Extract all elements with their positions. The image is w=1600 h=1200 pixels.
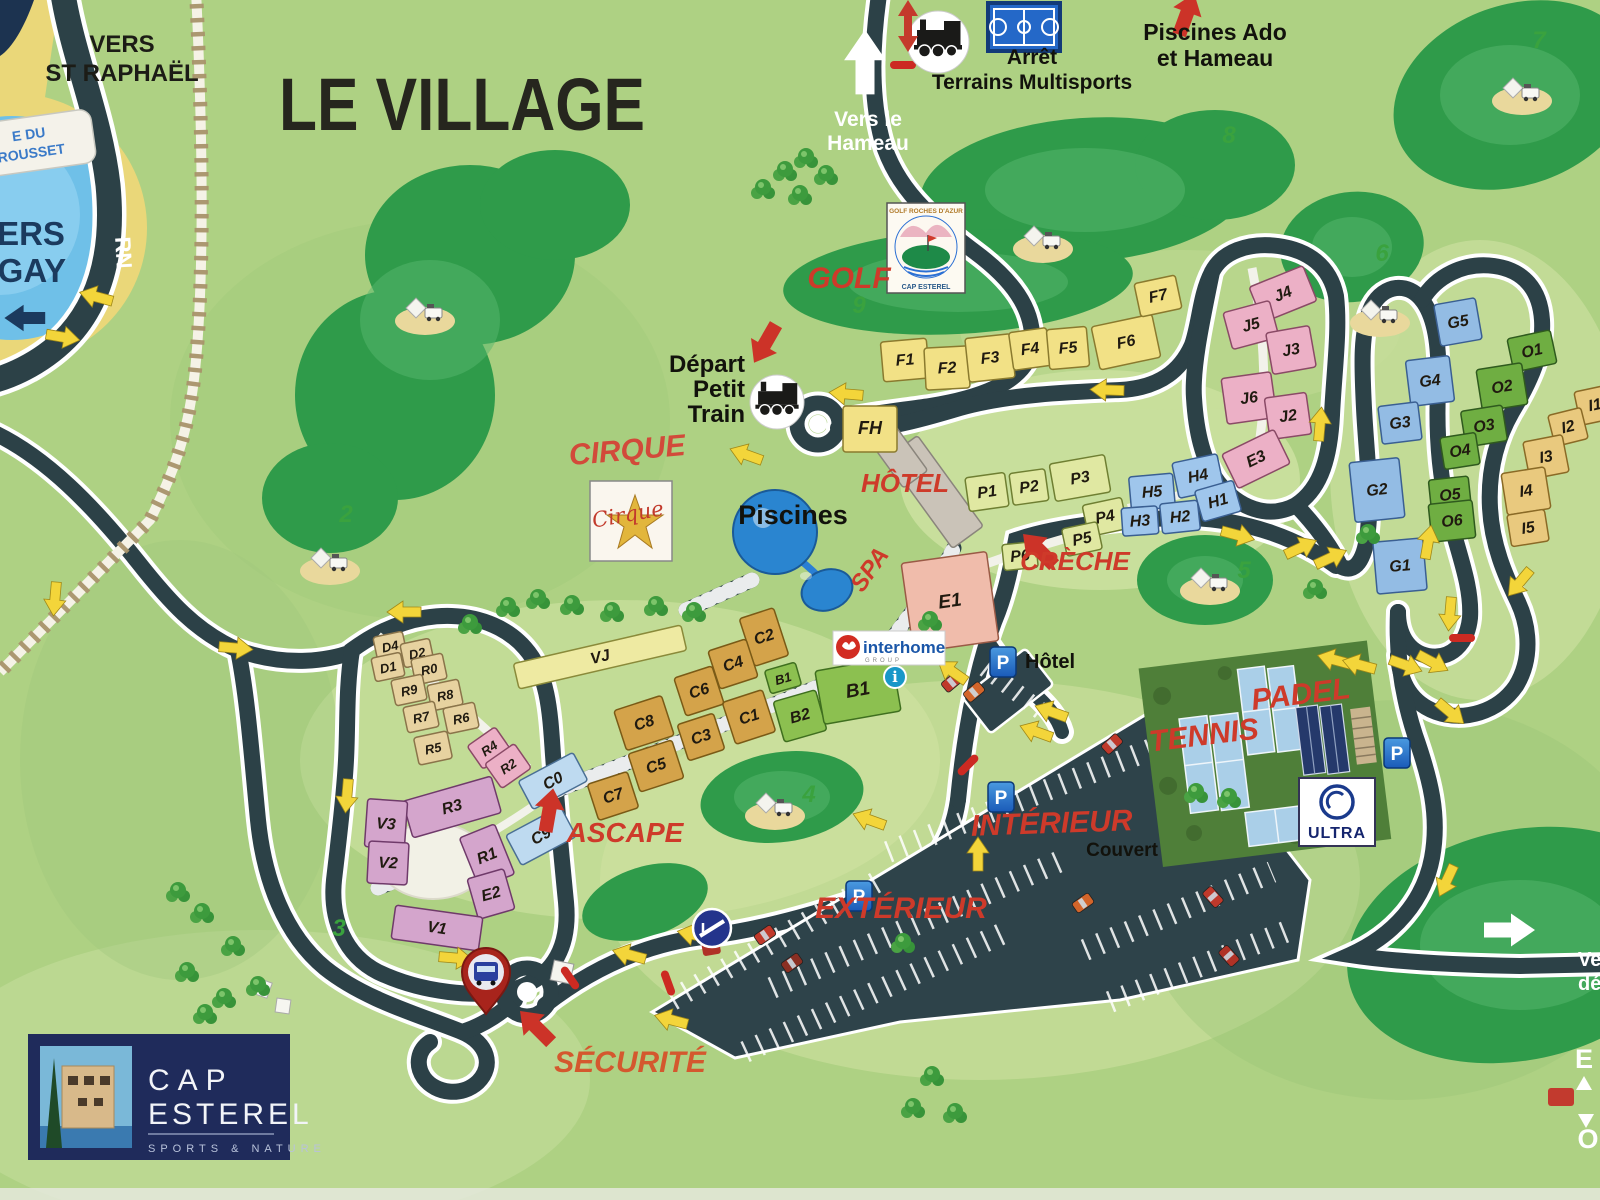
building-label: V2 (378, 854, 399, 872)
info-icon: i (884, 666, 906, 688)
building-label: H5 (1141, 483, 1164, 502)
building-label: F3 (980, 349, 1000, 368)
building-label: P1 (976, 483, 998, 503)
building-label: B1 (844, 678, 872, 703)
exterieur-label: EXTÉRIEUR (815, 891, 987, 925)
golf-logo-text-top: GOLF ROCHES D'AZUR (889, 208, 963, 215)
cap-logo-line2: ESTEREL (148, 1098, 313, 1131)
building-F2: F2 (924, 346, 970, 390)
svg-text:P: P (995, 788, 1008, 809)
rn-label: RN (110, 236, 137, 269)
hole-number-7: 7 (1532, 27, 1547, 54)
hotel-label-red: HÔTEL (861, 468, 949, 498)
building-P1: P1 (965, 472, 1009, 511)
building-label: E1 (937, 589, 963, 613)
interhome-sub: GROUP (865, 658, 902, 664)
building-label: V3 (376, 815, 397, 833)
hole-number-9: 9 (852, 292, 866, 319)
building-R9: R9 (391, 674, 428, 706)
building-J3: J3 (1266, 325, 1317, 374)
building-F4: F4 (1009, 328, 1052, 371)
building-label: O4 (1448, 441, 1472, 461)
legend-partial-o: O (1577, 1124, 1598, 1154)
exit-partial-2: dé (1578, 973, 1600, 995)
building-label: F2 (937, 360, 957, 378)
vers-le-hameau: Vers leHameau (827, 108, 909, 155)
svg-text:P: P (1391, 744, 1404, 765)
couvert-label: Couvert (1086, 840, 1158, 861)
building-I5: I5 (1507, 509, 1550, 547)
creche-label: CRÈCHE (1020, 546, 1130, 576)
building-label: J6 (1239, 389, 1259, 408)
golf-logo: GOLF ROCHES D'AZUR CAP ESTEREL (887, 203, 965, 293)
cirque-logo: Cirque (590, 481, 672, 561)
building-label: J2 (1278, 407, 1298, 426)
hole-number-8: 8 (1222, 122, 1236, 149)
exit-partial-1: Ve (1578, 949, 1600, 971)
piscines-ado: Piscines Adoet Hameau (1143, 19, 1287, 71)
building-P2: P2 (1009, 469, 1049, 506)
multisport-court-icon (988, 3, 1060, 51)
interhome-brand: interhome (863, 638, 945, 657)
building-R5: R5 (413, 731, 452, 765)
hole-number-2: 2 (338, 501, 353, 528)
ultra-label: ULTRA (1308, 825, 1366, 842)
roundabout-train (809, 415, 827, 433)
no-entry-dash-icon (1449, 634, 1475, 642)
building-H3: H3 (1121, 506, 1159, 536)
interieur-label: INTÉRIEUR (970, 803, 1133, 843)
building-F5: F5 (1046, 326, 1089, 369)
building-label: I1 (1587, 396, 1600, 415)
hole-number-5: 5 (1237, 557, 1251, 584)
cap-logo-line1: CAP (148, 1064, 234, 1097)
building-label: I4 (1518, 482, 1534, 501)
roundabout-south (517, 982, 537, 1002)
building-F1: F1 (880, 338, 929, 382)
building-label: G1 (1389, 557, 1412, 576)
building-G3: G3 (1378, 402, 1422, 445)
building-label: F5 (1058, 339, 1079, 358)
building-label: F1 (895, 351, 915, 370)
hole-number-3: 3 (332, 915, 346, 942)
building-H2: H2 (1160, 500, 1201, 534)
building-label: P3 (1069, 468, 1091, 488)
building-label: G2 (1366, 481, 1389, 500)
building-R7: R7 (403, 701, 440, 733)
building-G2: G2 (1349, 458, 1405, 523)
no-entry-dash-icon (890, 61, 916, 69)
building-label: J3 (1281, 341, 1302, 361)
svg-text:i: i (892, 668, 898, 686)
building-label: P2 (1018, 478, 1040, 498)
building-O2: O2 (1476, 363, 1528, 412)
map-canvas: F1F2F3F4F5F6F7FHVJP1P2P3P4P5P6J4J5J3J6J2… (0, 0, 1600, 1200)
building-F3: F3 (965, 334, 1015, 383)
building-label: V1 (426, 919, 448, 939)
building-FH: FH (843, 406, 897, 452)
building-O4: O4 (1440, 432, 1481, 469)
svg-text:P: P (997, 653, 1010, 674)
building-G1: G1 (1373, 538, 1427, 594)
parking-icon: P (990, 647, 1016, 677)
building-V2: V2 (367, 841, 409, 885)
building-I4: I4 (1501, 467, 1551, 515)
hole-number-4: 4 (801, 781, 815, 808)
building-G5: G5 (1434, 298, 1483, 347)
train-stop-top (907, 11, 969, 73)
ascape-label: ASCAPE (566, 817, 685, 848)
building-label: F4 (1020, 340, 1041, 359)
building-label: H3 (1129, 512, 1151, 530)
cap-logo-tagline: SPORTS & NATURE (148, 1143, 326, 1155)
building-label: FH (858, 418, 883, 438)
legend-partial-e: E (1575, 1044, 1593, 1074)
resort-map: F1F2F3F4F5F6F7FHVJP1P2P3P4P5P6J4J5J3J6J2… (0, 0, 1600, 1200)
ultra-logo: ULTRA (1299, 778, 1375, 846)
cap-esterel-logo: CAP ESTEREL SPORTS & NATURE (28, 1034, 326, 1160)
map-title: LE VILLAGE (279, 64, 645, 146)
parking-icon: P (1384, 738, 1410, 768)
golf-logo-text-bottom: CAP ESTEREL (902, 284, 952, 291)
building-D1: D1 (371, 652, 405, 682)
photo-edge (0, 1188, 1600, 1200)
p-hotel-label: Hôtel (1025, 651, 1075, 673)
train-depart-stop (750, 375, 804, 429)
interhome-logo: interhome GROUP (833, 631, 945, 665)
golf-label: GOLF (807, 262, 891, 295)
building-label: H2 (1169, 508, 1191, 527)
building-label: G3 (1388, 414, 1411, 433)
building-label: O2 (1490, 377, 1514, 397)
building-label: O6 (1441, 512, 1464, 531)
piscines-label: Piscines (738, 500, 848, 530)
vers-agay: VERSAGAY (0, 215, 66, 289)
building-label: G4 (1418, 372, 1441, 391)
building-R6: R6 (443, 702, 480, 734)
building-G4: G4 (1405, 355, 1454, 406)
hole-number-6: 6 (1375, 240, 1389, 267)
securite-label: SÉCURITÉ (554, 1045, 707, 1079)
